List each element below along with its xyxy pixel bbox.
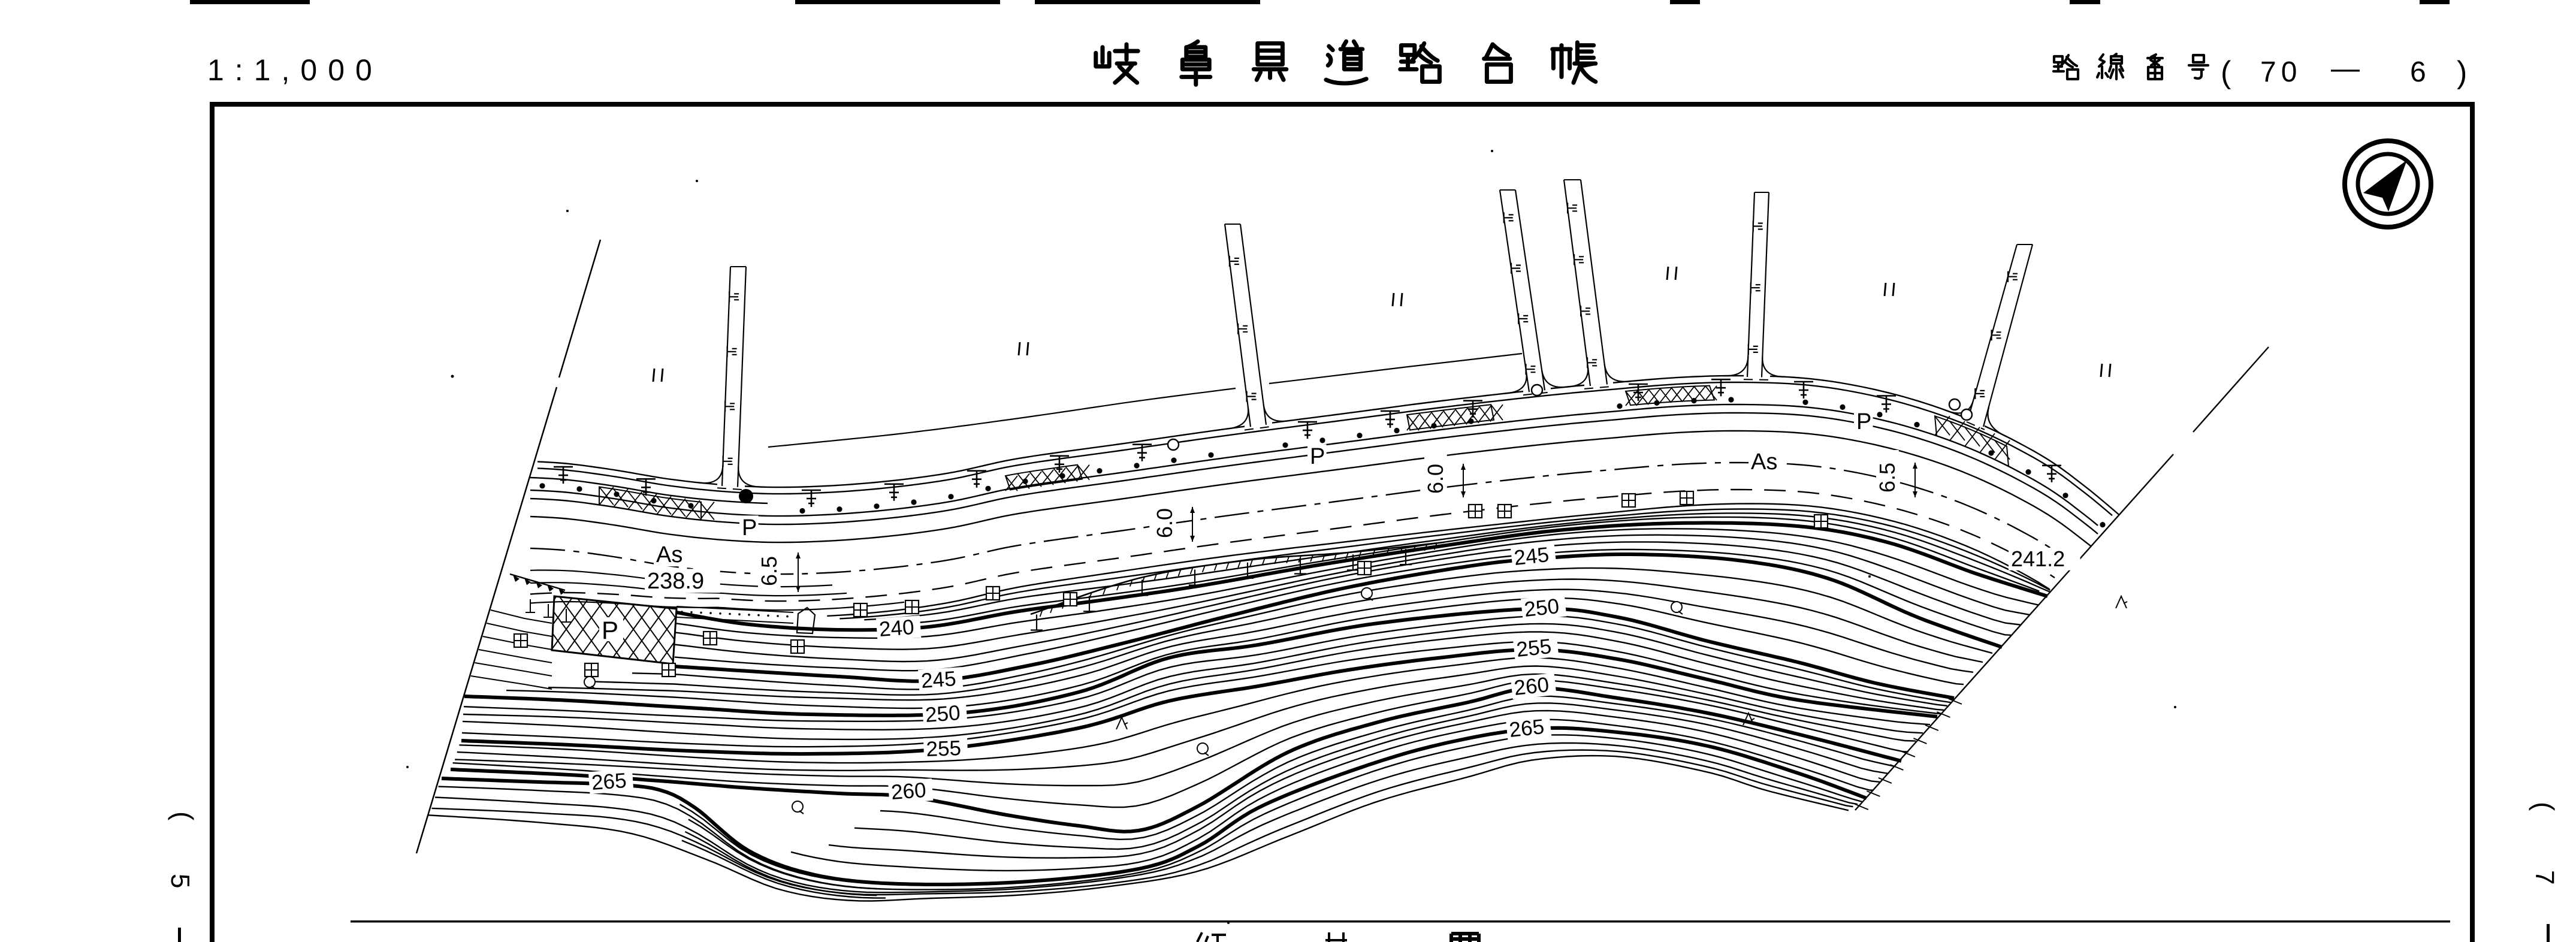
svg-text:265: 265 bbox=[591, 769, 627, 795]
svg-text:6: 6 bbox=[2410, 56, 2426, 88]
svg-text:P: P bbox=[1310, 444, 1325, 469]
svg-text:255: 255 bbox=[926, 736, 962, 761]
svg-text:6.5: 6.5 bbox=[757, 556, 781, 586]
svg-text:5: 5 bbox=[165, 874, 195, 888]
svg-text:6.5: 6.5 bbox=[1875, 463, 1899, 493]
svg-text:(: ( bbox=[168, 811, 199, 821]
svg-text:6.0: 6.0 bbox=[1423, 464, 1448, 494]
svg-text:(: ( bbox=[2221, 55, 2231, 90]
svg-text:—: — bbox=[2331, 53, 2360, 84]
svg-text:245: 245 bbox=[920, 667, 957, 693]
svg-text:7: 7 bbox=[2530, 870, 2559, 884]
svg-text:241.2: 241.2 bbox=[2011, 547, 2065, 571]
svg-text:250: 250 bbox=[925, 701, 961, 727]
svg-text:): ) bbox=[2457, 55, 2467, 90]
svg-text:240: 240 bbox=[878, 615, 915, 641]
svg-text:P: P bbox=[1856, 409, 1871, 434]
svg-text:260: 260 bbox=[890, 778, 927, 804]
svg-text:250: 250 bbox=[1523, 594, 1560, 621]
svg-text:255: 255 bbox=[1515, 635, 1553, 662]
svg-text:70: 70 bbox=[2260, 56, 2302, 88]
svg-text:P: P bbox=[742, 515, 757, 541]
svg-text:245: 245 bbox=[1513, 543, 1550, 570]
svg-text:6.0: 6.0 bbox=[1152, 508, 1177, 538]
svg-text:260: 260 bbox=[1513, 673, 1550, 700]
svg-text:As: As bbox=[1751, 449, 1777, 475]
svg-text:1:1,000: 1:1,000 bbox=[207, 53, 383, 87]
svg-text:As: As bbox=[656, 542, 682, 567]
svg-text:(: ( bbox=[2529, 802, 2560, 811]
svg-text:P: P bbox=[602, 616, 618, 644]
svg-text:238.9: 238.9 bbox=[647, 569, 704, 594]
svg-text:265: 265 bbox=[1508, 715, 1545, 742]
